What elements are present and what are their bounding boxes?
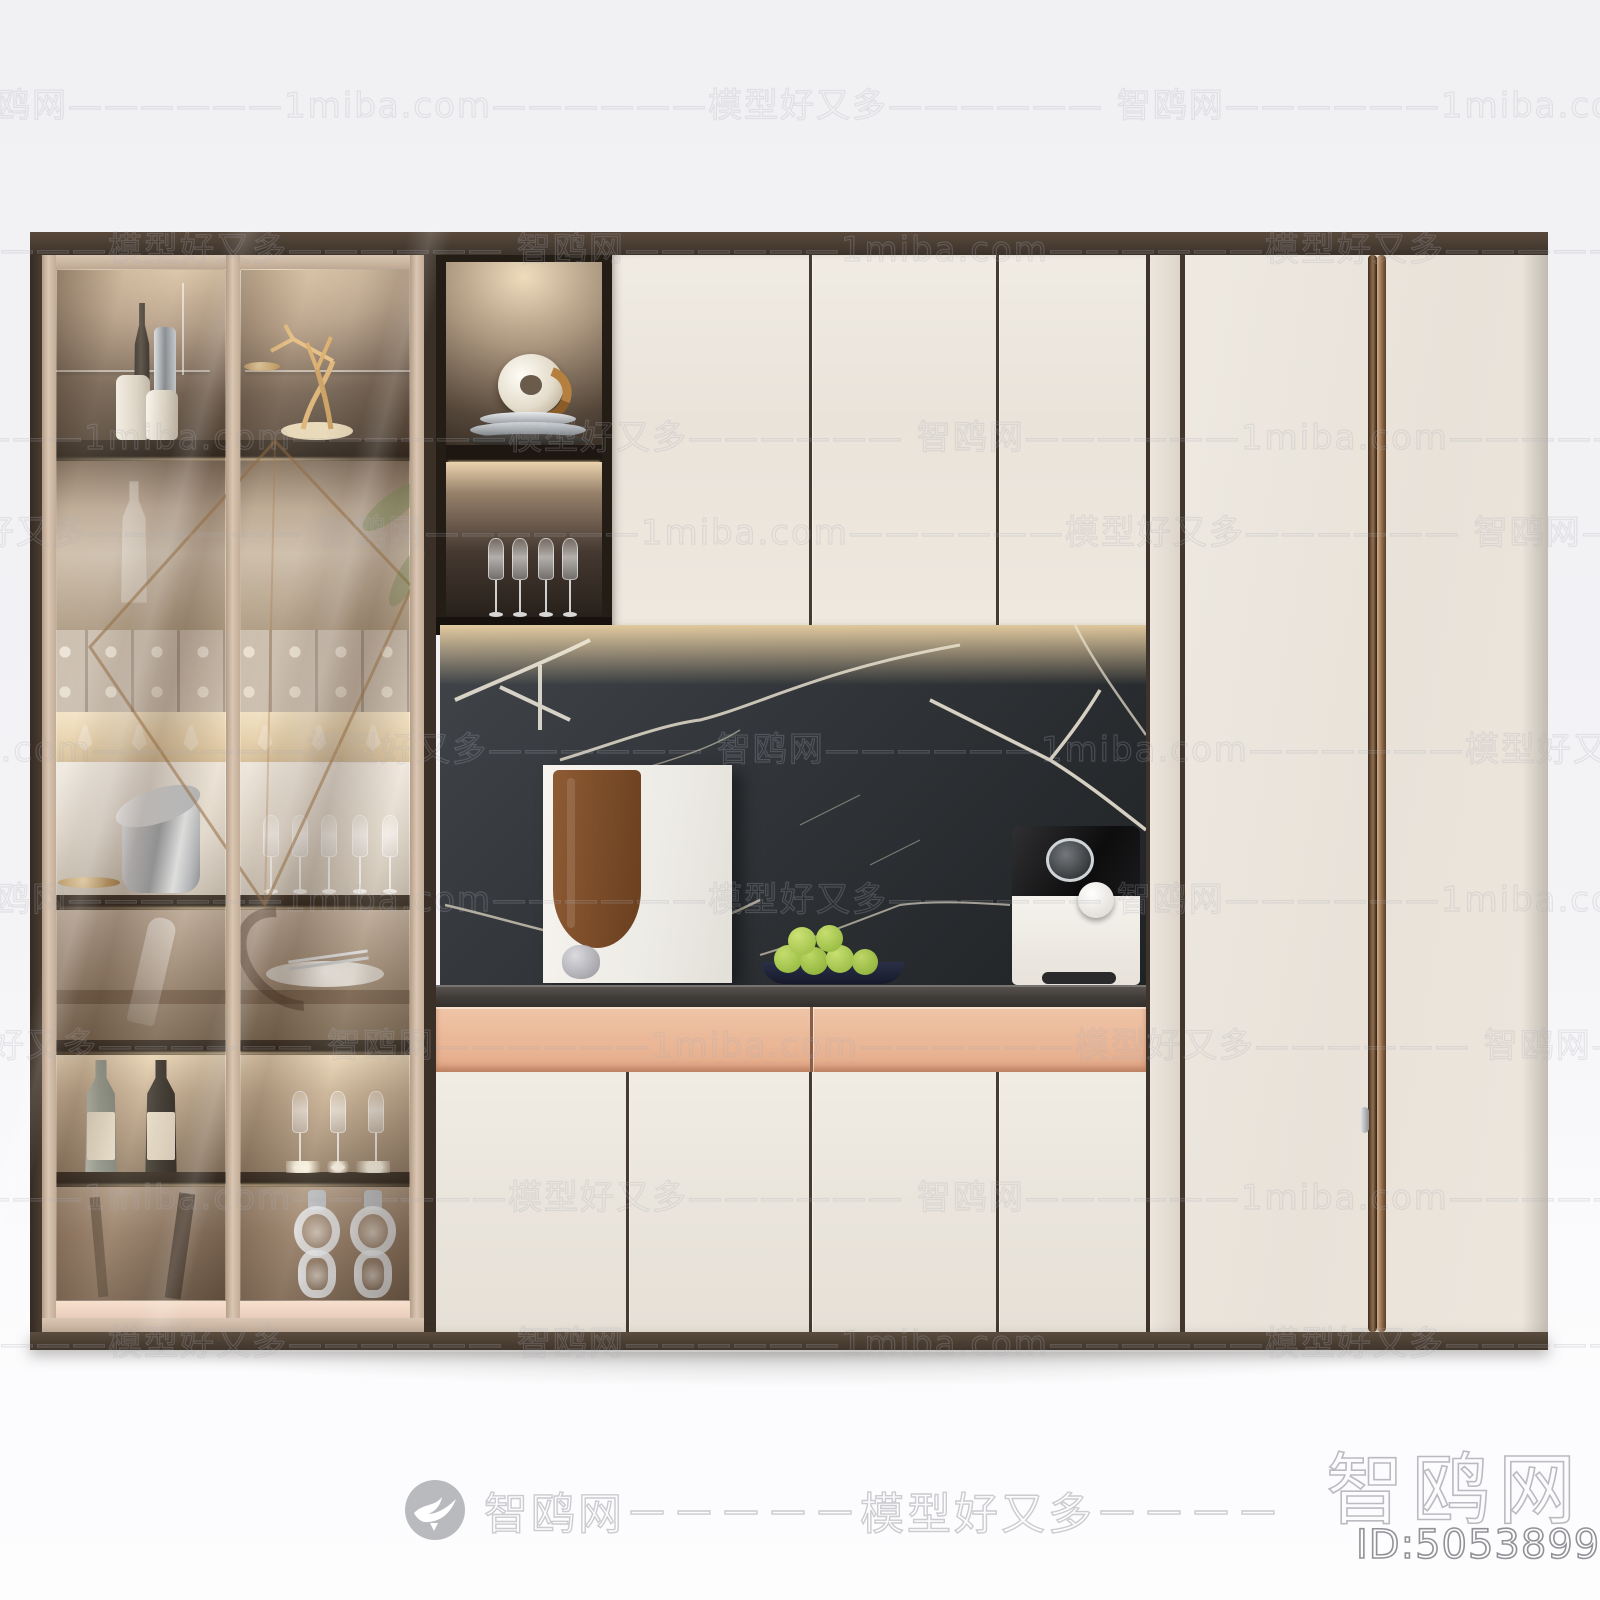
door-frame-center — [226, 255, 240, 1318]
watermark-tile-row: 智鸥网——————1miba.com——————模型好又多—————— 智鸥网—… — [0, 78, 1600, 127]
green-fruit — [774, 931, 894, 971]
door-frame-right — [410, 255, 424, 1318]
upper-cabinet-doors — [612, 255, 1146, 625]
blush-drawers — [436, 1007, 1146, 1072]
wood-cutting-board — [553, 770, 641, 948]
handle-hook — [1360, 1107, 1369, 1133]
door-gap — [1180, 255, 1185, 1332]
torus-sculpture — [498, 354, 564, 416]
door-gap — [996, 255, 999, 625]
bronze-handle-strip — [1368, 255, 1377, 1332]
gold-diamond-reflection — [60, 435, 420, 935]
cabinet-base-plinth — [30, 1332, 1548, 1350]
door-gap — [996, 1072, 999, 1332]
champagne-flute — [488, 538, 504, 618]
champagne-flute — [538, 538, 554, 618]
display-cabinet — [30, 232, 1548, 1350]
coffee-machine-chrome — [1046, 838, 1094, 882]
column-shelf-board — [446, 445, 602, 462]
model-id-text: ID:505389933 — [1356, 1522, 1600, 1568]
stone-countertop — [436, 985, 1146, 1007]
glass-wine-cabinet — [30, 255, 436, 1332]
door-gap — [626, 1072, 629, 1332]
door-gap — [809, 255, 812, 625]
floor-shadow — [10, 1352, 1570, 1398]
glass-jar — [562, 945, 600, 979]
watermark-footer-text: 智鸥网－－－－－模型好又多－－－－ — [484, 1478, 1283, 1542]
coffee-machine-knob — [1078, 882, 1114, 918]
filler-panel — [1150, 255, 1180, 1332]
display-niche-bottom — [446, 462, 602, 617]
door-gap — [809, 1072, 812, 1332]
champagne-flute — [562, 538, 578, 618]
edge-shading — [1522, 255, 1548, 1332]
tall-cabinet-right — [1146, 255, 1548, 1332]
marble-backsplash-niche — [440, 625, 1146, 985]
door-frame-left — [42, 255, 56, 1318]
drawer-gap — [810, 1007, 813, 1072]
display-niche-top — [446, 262, 602, 445]
watermark-footer: 智鸥网－－－－－模型好又多－－－－ — [404, 1478, 1283, 1542]
open-display-column — [436, 255, 612, 635]
remote-control — [1042, 972, 1116, 984]
coffee-machine — [1012, 826, 1140, 985]
cabinet-bottom-rail — [42, 1318, 424, 1332]
champagne-flute — [512, 538, 528, 618]
lower-cabinet-doors — [436, 1072, 1146, 1332]
bronze-handle-strip — [1377, 255, 1386, 1332]
seagull-logo-icon — [404, 1479, 466, 1541]
render-canvas: 智鸥网——————1miba.com——————模型好又多—————— 智鸥网—… — [0, 0, 1600, 1600]
